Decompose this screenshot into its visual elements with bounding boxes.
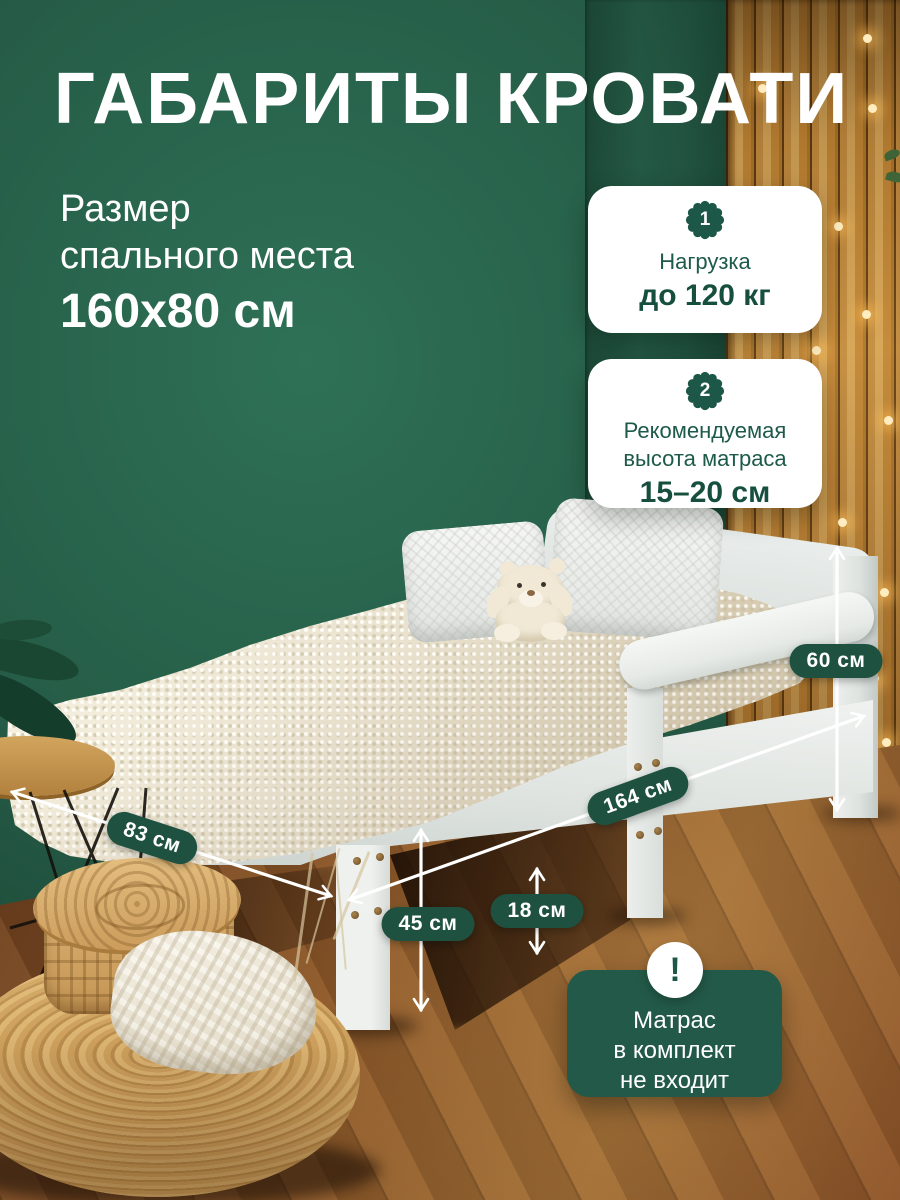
note-line1: Матрас [567, 1006, 782, 1036]
number-seal: 1 [683, 198, 727, 242]
note-line3: не входит [567, 1066, 782, 1096]
note-line2: в комплект [567, 1036, 782, 1066]
info-card-mattress-height: 2 Рекомендуемая высота матраса 15–20 см [588, 359, 822, 508]
sleeping-area-block: Размер спального места 160x80 см [60, 186, 354, 340]
info-card-load: 1 Нагрузка до 120 кг [588, 186, 822, 333]
dimension-pill-side-height: 45 см [382, 907, 475, 941]
sleeping-area-line2: спального места [60, 233, 354, 280]
dimension-pill-back-height: 60 см [790, 644, 883, 678]
exclamation-icon: ! [647, 942, 703, 998]
seal-number: 1 [683, 198, 727, 242]
sleeping-area-size: 160x80 см [60, 284, 354, 340]
card-mattress-value: 15–20 см [640, 476, 771, 510]
page-title: ГАБАРИТЫ КРОВАТИ [54, 58, 849, 140]
card-mattress-line1: Рекомендуемая [624, 417, 787, 445]
card-load-label: Нагрузка [659, 248, 751, 276]
note-badge: ! Матрас в комплект не входит [567, 970, 782, 1097]
dimension-pill-clearance: 18 см [491, 894, 584, 928]
card-load-value: до 120 кг [639, 279, 771, 313]
sleeping-area-line1: Размер [60, 186, 354, 233]
card-mattress-line2: высота матраса [623, 445, 786, 473]
seal-number: 2 [683, 369, 727, 413]
number-seal: 2 [683, 369, 727, 413]
infographic-canvas: 60 см 164 см 83 см 45 см 18 см ГАБАРИТЫ … [0, 0, 900, 1200]
